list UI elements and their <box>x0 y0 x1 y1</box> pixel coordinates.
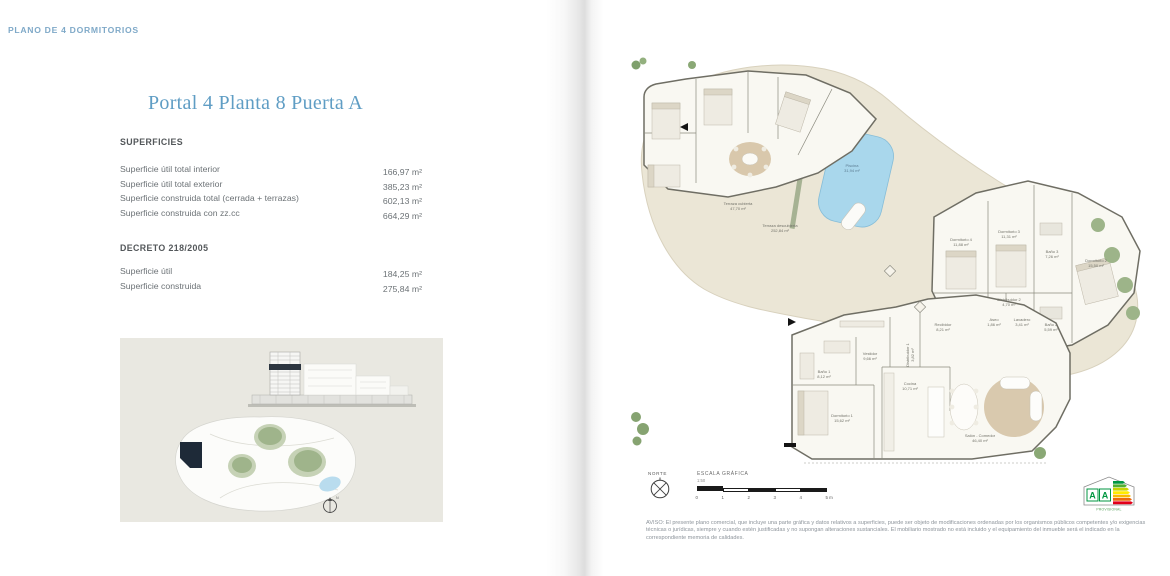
scale-tick: 3 <box>774 495 776 500</box>
north-indicator: NORTE <box>648 471 688 505</box>
room-label: Vestidor9,66 m² <box>863 351 878 361</box>
floor-plan: Piscina31,94 m²Terraza cubierta47,70 m²T… <box>628 55 1168 465</box>
table-row: Superficie construida total (cerrada + t… <box>120 193 422 208</box>
svg-text:N: N <box>336 496 339 500</box>
table-row: Superficie construida con zz.cc664,29 m² <box>120 208 422 223</box>
room-label: Baño 37,26 m² <box>1045 249 1059 259</box>
page-fold <box>546 0 606 576</box>
compass-icon <box>648 476 672 500</box>
scale-tick: 0 <box>696 495 698 500</box>
brochure-spread: PLANO DE 4 DORMITORIOS Portal 4 Planta 8… <box>0 0 1170 576</box>
energy-letter: A <box>1102 491 1109 501</box>
superficies-table: Superficie útil total interior166,97 m²S… <box>120 164 422 222</box>
shower <box>800 353 814 379</box>
row-value: 166,97 m² <box>356 167 422 182</box>
location-diagram-image: N <box>120 338 443 522</box>
sofa <box>1000 377 1030 389</box>
graphic-scale: ESCALA GRÁFICA 1:50 012345 m <box>697 471 837 505</box>
room-label: Lavadero3,41 m² <box>1014 317 1031 327</box>
row-label: Superficie construida <box>120 281 356 296</box>
row-value: 602,13 m² <box>356 196 422 211</box>
row-value: 184,25 m² <box>356 269 422 284</box>
room-label: Baño 25,59 m² <box>1044 322 1058 332</box>
decreto-heading: DECRETO 218/2005 <box>120 243 208 253</box>
room-label: Cocina10,71 m² <box>902 381 918 391</box>
room-label: Recibidor8,21 m² <box>935 322 953 332</box>
row-label: Superficie útil total interior <box>120 164 356 179</box>
scale-ticks: 012345 m <box>697 495 837 503</box>
legal-notice: AVISO: El presente plano comercial, que … <box>646 520 1150 542</box>
page-title: Portal 4 Planta 8 Puerta A <box>148 92 363 115</box>
scale-tick: 5 m <box>826 495 833 500</box>
energy-certificate: A A PROVISIONAL <box>1083 474 1135 512</box>
kitchen-counter <box>884 373 894 451</box>
scale-tick: 1 <box>722 495 724 500</box>
room-label: Piscina31,94 m² <box>844 163 860 173</box>
row-label: Superficie útil total exterior <box>120 179 356 194</box>
energy-status: PROVISIONAL <box>1096 507 1121 511</box>
location-diagram: N <box>120 338 443 522</box>
decreto-table: Superficie útil184,25 m²Superficie const… <box>120 266 422 295</box>
table-row: Superficie útil184,25 m² <box>120 266 422 281</box>
energy-letter: A <box>1089 491 1096 501</box>
site-plan: N <box>175 417 355 513</box>
entry-arrow <box>788 318 796 326</box>
table-row: Superficie construida275,84 m² <box>120 281 422 296</box>
table-row: Superficie útil total interior166,97 m² <box>120 164 422 179</box>
wardrobe <box>840 321 884 327</box>
row-value: 664,29 m² <box>356 211 422 226</box>
sofa <box>1030 391 1042 421</box>
row-label: Superficie construida con zz.cc <box>120 208 356 223</box>
bathtub <box>824 341 850 353</box>
row-value: 275,84 m² <box>356 284 422 299</box>
scale-tick: 4 <box>800 495 802 500</box>
section-marker <box>784 443 796 447</box>
scale-label: ESCALA GRÁFICA <box>697 471 837 477</box>
highlighted-floor <box>269 364 301 370</box>
kitchen-island <box>928 387 944 437</box>
room-label: Baño 18,12 m² <box>817 369 831 379</box>
row-label: Superficie construida total (cerrada + t… <box>120 193 356 208</box>
scale-bar <box>697 486 827 494</box>
scale-ratio: 1:50 <box>697 478 837 483</box>
table-row: Superficie útil total exterior385,23 m² <box>120 179 422 194</box>
row-value: 385,23 m² <box>356 182 422 197</box>
superficies-heading: SUPERFICIES <box>120 137 183 147</box>
scale-tick: 2 <box>748 495 750 500</box>
energy-rating-icon: A A PROVISIONAL <box>1083 474 1135 512</box>
row-label: Superficie útil <box>120 266 356 281</box>
page-header: PLANO DE 4 DORMITORIOS <box>8 25 139 35</box>
